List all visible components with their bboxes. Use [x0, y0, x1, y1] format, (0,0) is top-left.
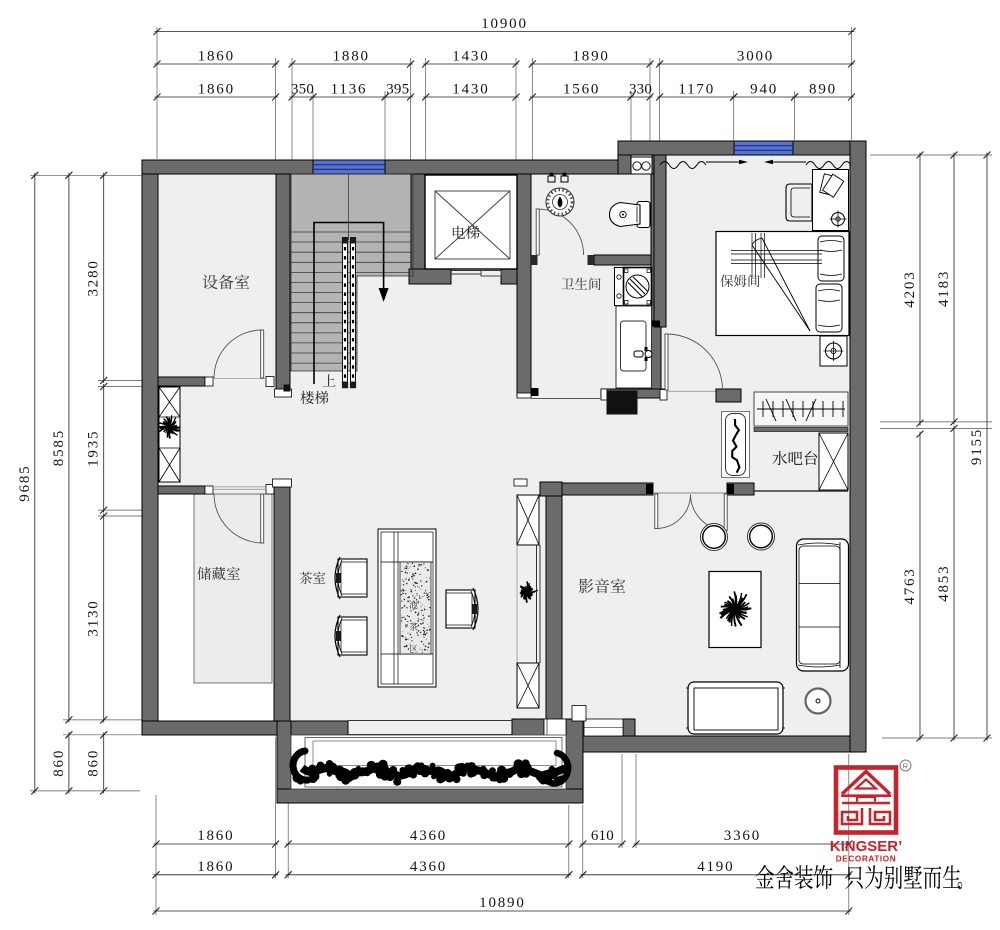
svg-text:9155: 9155: [969, 428, 985, 465]
svg-text:R: R: [903, 762, 909, 771]
svg-text:3360: 3360: [724, 828, 761, 844]
svg-text:1860: 1860: [197, 828, 234, 844]
svg-text:10900: 10900: [481, 16, 528, 32]
svg-text:DECORATION: DECORATION: [836, 855, 896, 864]
svg-text:3130: 3130: [86, 599, 102, 636]
svg-text:1880: 1880: [333, 49, 370, 65]
svg-text:395: 395: [386, 82, 409, 98]
svg-text:1430: 1430: [452, 82, 489, 98]
svg-text:1430: 1430: [452, 49, 489, 65]
svg-text:3280: 3280: [86, 259, 102, 296]
svg-text:9685: 9685: [17, 464, 33, 501]
svg-text:610: 610: [591, 828, 614, 844]
svg-text:10890: 10890: [479, 895, 526, 911]
svg-text:3000: 3000: [737, 49, 774, 65]
svg-text:4190: 4190: [697, 859, 734, 875]
svg-text:4853: 4853: [936, 565, 952, 602]
svg-text:1860: 1860: [198, 49, 235, 65]
svg-text:860: 860: [51, 749, 67, 777]
svg-text:1136: 1136: [331, 82, 368, 98]
svg-text:4183: 4183: [936, 270, 952, 307]
svg-text:4763: 4763: [902, 567, 918, 604]
svg-text:330: 330: [629, 82, 652, 98]
svg-text:1170: 1170: [678, 82, 715, 98]
svg-text:1860: 1860: [197, 859, 234, 875]
svg-text:4360: 4360: [410, 859, 447, 875]
svg-text:890: 890: [809, 82, 837, 98]
svg-text:940: 940: [750, 82, 778, 98]
svg-text:1935: 1935: [86, 430, 102, 467]
svg-text:350: 350: [291, 82, 314, 98]
svg-text:KINGSER’: KINGSER’: [830, 838, 903, 855]
svg-text:1890: 1890: [572, 49, 609, 65]
svg-text:4203: 4203: [902, 270, 918, 307]
svg-text:860: 860: [86, 749, 102, 777]
svg-text:1560: 1560: [563, 82, 600, 98]
svg-text:8585: 8585: [51, 429, 67, 466]
svg-text:4360: 4360: [410, 828, 447, 844]
svg-text:1860: 1860: [198, 82, 235, 98]
